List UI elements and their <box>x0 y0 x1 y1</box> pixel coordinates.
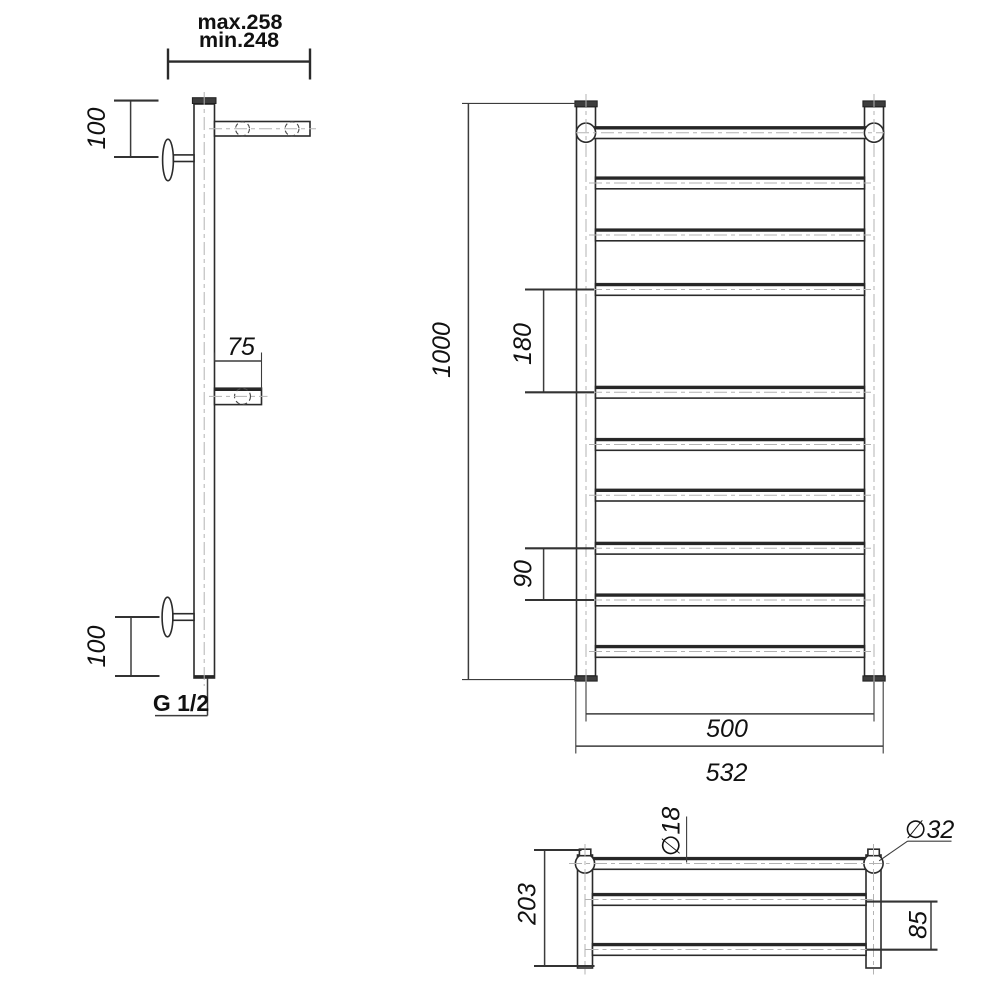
dia-18-label: ∅18 <box>658 807 686 857</box>
dim-1000-label: 1000 <box>428 322 456 378</box>
rung-4 <box>589 284 871 296</box>
dim-bracket-depth: max.258 min.248 <box>168 10 310 80</box>
front-right-collector <box>865 107 884 676</box>
rung-6 <box>589 439 871 451</box>
callout-collector-diameter: ∅32 <box>879 816 954 861</box>
towel-rail-technical-drawing: max.258 min.248 100 75 100 G 1/2 <box>0 0 1000 1000</box>
bottom-wall-flange <box>162 597 173 637</box>
thread-callout: G 1/2 <box>153 679 209 717</box>
dim-90-label: 90 <box>510 560 538 588</box>
rung-5 <box>589 387 871 399</box>
dim-180-label: 180 <box>509 323 537 365</box>
side-view: max.258 min.248 100 75 100 G 1/2 <box>83 10 316 716</box>
rung-7 <box>589 489 871 501</box>
dim-532-label: 532 <box>706 759 748 787</box>
side-collector-tube <box>194 104 215 678</box>
dim-top-offset-100: 100 <box>83 101 159 157</box>
dim-100-bottom-label: 100 <box>83 626 111 668</box>
callout-rail-diameter: ∅18 <box>658 807 687 863</box>
thread-g12-label: G 1/2 <box>153 690 209 716</box>
drawing-canvas: max.258 min.248 100 75 100 G 1/2 <box>0 0 1000 1000</box>
bottom-flange-stem <box>173 614 194 621</box>
dim-bottom-offset-100: 100 <box>83 617 160 676</box>
dia-32-label: ∅32 <box>905 816 955 844</box>
front-view: 1000 180 90 500 532 <box>428 94 885 787</box>
dim-min-248-label: min.248 <box>199 28 279 52</box>
top-wall-flange <box>163 139 174 181</box>
dim-axis-width-500: 500 <box>586 682 874 743</box>
top-flange-stem <box>173 155 194 162</box>
dim-100-top-label: 100 <box>83 108 111 150</box>
dim-75-label: 75 <box>227 333 255 361</box>
rung-2 <box>589 177 871 189</box>
rung-8 <box>589 543 871 555</box>
dim-shelf-depth-75: 75 <box>215 333 262 390</box>
rung-9 <box>589 594 871 606</box>
dim-85-label: 85 <box>905 911 933 939</box>
dim-203-label: 203 <box>514 883 542 926</box>
dim-500-label: 500 <box>706 715 748 743</box>
rung-3 <box>589 229 871 241</box>
top-view: 203 85 ∅18 ∅32 <box>514 807 955 975</box>
rung-10 <box>589 646 871 658</box>
